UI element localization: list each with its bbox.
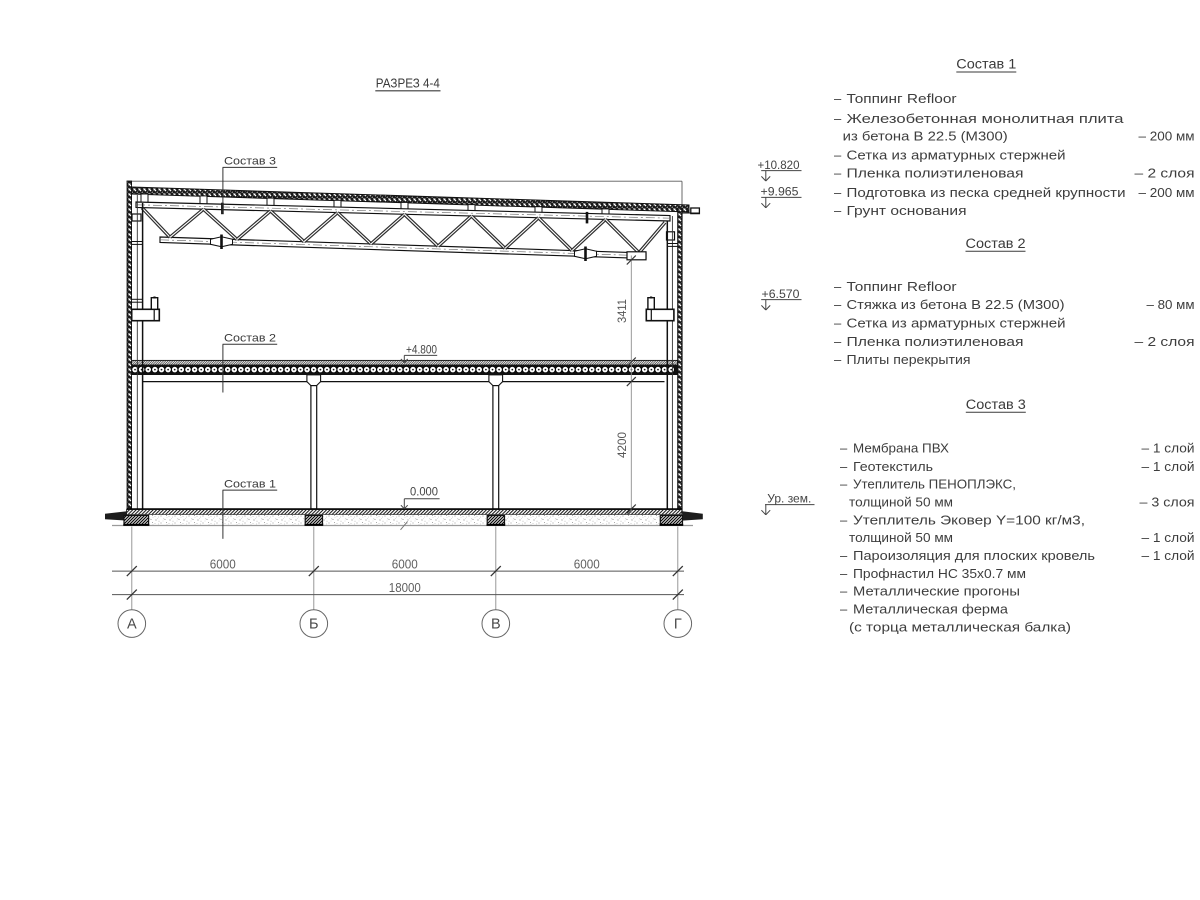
svg-text:–: –	[840, 459, 848, 474]
svg-text:–: –	[834, 111, 842, 126]
svg-text:–: –	[834, 166, 842, 181]
svg-text:Сетка из арматурных стержней: Сетка из арматурных стержней	[847, 148, 1066, 163]
svg-text:– 200 мм: – 200 мм	[1139, 129, 1195, 144]
svg-text:Подготовка из песка средней кр: Подготовка из песка средней крупности	[847, 185, 1126, 200]
svg-text:–: –	[834, 352, 842, 367]
svg-text:Г: Г	[674, 617, 682, 633]
svg-text:6000: 6000	[210, 557, 236, 571]
svg-text:РАЗРЕЗ 4-4: РАЗРЕЗ 4-4	[376, 75, 440, 90]
svg-text:Состав 1: Состав 1	[224, 478, 276, 490]
svg-text:Пленка полиэтиленовая: Пленка полиэтиленовая	[847, 334, 1024, 349]
svg-text:Геотекстиль: Геотекстиль	[853, 459, 933, 474]
svg-text:Железобетонная монолитная пли: Железобетонная монолитная плита	[847, 111, 1125, 126]
svg-text:–: –	[840, 512, 848, 527]
svg-text:–: –	[834, 148, 842, 163]
svg-text:–: –	[840, 476, 848, 491]
svg-text:–: –	[834, 91, 842, 106]
svg-text:–: –	[840, 548, 848, 563]
svg-text:Стяжка из бетона В 22.5 (М300): Стяжка из бетона В 22.5 (М300)	[847, 297, 1065, 312]
svg-text:0.000: 0.000	[410, 487, 438, 499]
svg-text:– 200 мм: – 200 мм	[1139, 185, 1195, 200]
svg-text:+4.800: +4.800	[406, 344, 437, 356]
svg-text:Ур. зем.: Ур. зем.	[767, 492, 811, 506]
svg-text:– 2 слоя: – 2 слоя	[1135, 166, 1195, 181]
svg-text:6000: 6000	[392, 557, 418, 571]
svg-text:+6.570: +6.570	[762, 287, 800, 301]
svg-text:–: –	[834, 203, 842, 218]
svg-text:– 80 мм: – 80 мм	[1147, 297, 1195, 312]
svg-text:из бетона В 22.5 (М300): из бетона В 22.5 (М300)	[843, 129, 1008, 144]
svg-text:– 1 слой: – 1 слой	[1142, 459, 1195, 474]
svg-text:– 2 слоя: – 2 слоя	[1135, 334, 1195, 349]
svg-text:Утеплитель Эковер Y=100 кг/м3,: Утеплитель Эковер Y=100 кг/м3,	[853, 512, 1085, 527]
svg-text:–: –	[840, 441, 848, 456]
svg-text:Мембрана ПВХ: Мембрана ПВХ	[853, 441, 949, 456]
svg-text:Пароизоляция для плоских крове: Пароизоляция для плоских кровель	[853, 548, 1095, 563]
svg-text:– 1 слой: – 1 слой	[1142, 530, 1195, 545]
svg-text:Сетка из арматурных стержней: Сетка из арматурных стержней	[847, 315, 1066, 330]
svg-text:Состав 3: Состав 3	[966, 397, 1026, 413]
svg-text:Состав 2: Состав 2	[224, 333, 276, 345]
svg-text:–: –	[840, 602, 848, 617]
svg-text:Состав 2: Состав 2	[966, 236, 1026, 252]
svg-text:–: –	[834, 279, 842, 294]
svg-text:– 3 слоя: – 3 слоя	[1140, 494, 1195, 509]
svg-text:–: –	[834, 297, 842, 312]
svg-text:Металлические прогоны: Металлические прогоны	[853, 584, 1020, 599]
svg-text:–: –	[840, 566, 848, 581]
svg-text:+10.820: +10.820	[758, 158, 800, 172]
svg-text:Топпинг Refloor: Топпинг Refloor	[847, 91, 958, 106]
svg-text:+9.965: +9.965	[761, 185, 799, 199]
svg-text:Состав 1: Состав 1	[956, 57, 1016, 73]
svg-text:–: –	[834, 315, 842, 330]
svg-text:Б: Б	[309, 617, 319, 633]
svg-text:4200: 4200	[617, 432, 629, 458]
svg-text:толщиной 50 мм: толщиной 50 мм	[849, 494, 953, 509]
svg-text:18000: 18000	[389, 581, 421, 595]
svg-text:Плиты перекрытия: Плиты перекрытия	[847, 352, 971, 367]
svg-text:Профнастил НС 35х0.7 мм: Профнастил НС 35х0.7 мм	[853, 566, 1026, 581]
svg-text:Грунт основания: Грунт основания	[847, 203, 967, 218]
svg-text:Металлическая ферма: Металлическая ферма	[853, 602, 1009, 617]
svg-text:6000: 6000	[574, 557, 600, 571]
svg-text:–: –	[840, 584, 848, 599]
svg-text:В: В	[491, 617, 501, 633]
svg-text:3411: 3411	[617, 299, 629, 323]
svg-text:Состав 3: Состав 3	[224, 156, 276, 168]
svg-text:– 1 слой: – 1 слой	[1142, 441, 1195, 456]
svg-text:– 1 слой: – 1 слой	[1142, 548, 1195, 563]
svg-text:–: –	[834, 334, 842, 349]
svg-text:–: –	[834, 185, 842, 200]
svg-text:толщиной 50 мм: толщиной 50 мм	[849, 530, 953, 545]
svg-text:А: А	[127, 617, 137, 633]
svg-text:Пленка полиэтиленовая: Пленка полиэтиленовая	[847, 166, 1024, 181]
svg-text:(с торца металлическая балка): (с торца металлическая балка)	[849, 620, 1071, 635]
svg-text:Топпинг Refloor: Топпинг Refloor	[847, 279, 958, 294]
svg-text:Утеплитель ПЕНОПЛЭКС,: Утеплитель ПЕНОПЛЭКС,	[853, 476, 1016, 491]
